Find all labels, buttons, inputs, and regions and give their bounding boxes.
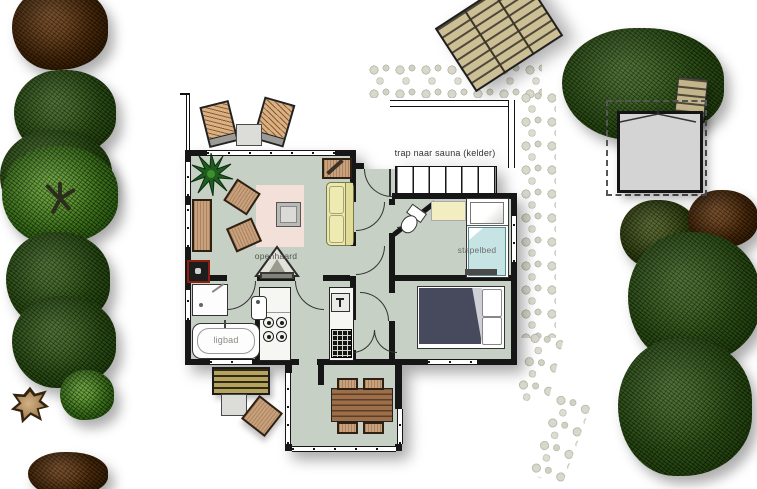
sofa bbox=[326, 182, 354, 246]
faucet-icon bbox=[339, 299, 341, 307]
window bbox=[210, 359, 252, 365]
coffee-table bbox=[276, 202, 301, 227]
pillow bbox=[482, 317, 502, 345]
wall bbox=[285, 359, 292, 373]
bunk-bed bbox=[466, 198, 509, 278]
bathtub: ligbad bbox=[192, 323, 260, 359]
dining-chair bbox=[363, 378, 384, 390]
garden-bench bbox=[212, 367, 270, 395]
bunk-bed-label: stapelbed bbox=[446, 246, 508, 255]
stove-burner-icon bbox=[276, 317, 287, 328]
bathtub-label: ligbad bbox=[199, 336, 253, 345]
side-table bbox=[322, 158, 352, 179]
wall bbox=[318, 365, 324, 385]
dining-table bbox=[331, 388, 393, 422]
window bbox=[185, 205, 191, 247]
window bbox=[292, 446, 396, 452]
window bbox=[428, 359, 477, 365]
wall bbox=[389, 199, 395, 205]
houseplant-icon bbox=[190, 152, 234, 198]
sleep-mat bbox=[431, 201, 466, 221]
dining-chair bbox=[337, 422, 358, 434]
site-plan: ligbad bbox=[0, 0, 757, 489]
double-bed bbox=[417, 286, 505, 349]
dining-chair bbox=[363, 422, 384, 434]
wall bbox=[395, 365, 402, 409]
second-sink bbox=[331, 293, 350, 312]
garden-table bbox=[236, 124, 262, 146]
wall bbox=[285, 444, 292, 451]
kitchen-sink bbox=[251, 296, 267, 320]
duvet bbox=[419, 288, 481, 344]
window bbox=[397, 409, 403, 444]
wall bbox=[389, 233, 395, 293]
stove-burner-icon bbox=[276, 331, 287, 342]
pillow bbox=[470, 202, 504, 224]
faucet-icon bbox=[224, 320, 226, 328]
pillow bbox=[482, 289, 502, 317]
window bbox=[285, 373, 291, 444]
window bbox=[511, 216, 517, 262]
wall-shelf bbox=[465, 269, 497, 275]
house-floorplan: ligbad bbox=[0, 0, 757, 489]
wall bbox=[323, 275, 350, 281]
fireplace-label: openhaard bbox=[246, 252, 306, 261]
sideboard bbox=[192, 199, 212, 252]
dining-chair bbox=[337, 378, 358, 390]
window bbox=[185, 290, 191, 320]
cellar-grate bbox=[331, 329, 352, 358]
wall bbox=[395, 444, 402, 451]
boiler-stove bbox=[187, 260, 210, 283]
garden-table bbox=[221, 394, 247, 416]
stairs-label: trap naar sauna (kelder) bbox=[378, 149, 512, 158]
stove-burner-icon bbox=[263, 331, 274, 342]
entry-door-leaf bbox=[389, 169, 391, 196]
shower bbox=[192, 284, 228, 316]
